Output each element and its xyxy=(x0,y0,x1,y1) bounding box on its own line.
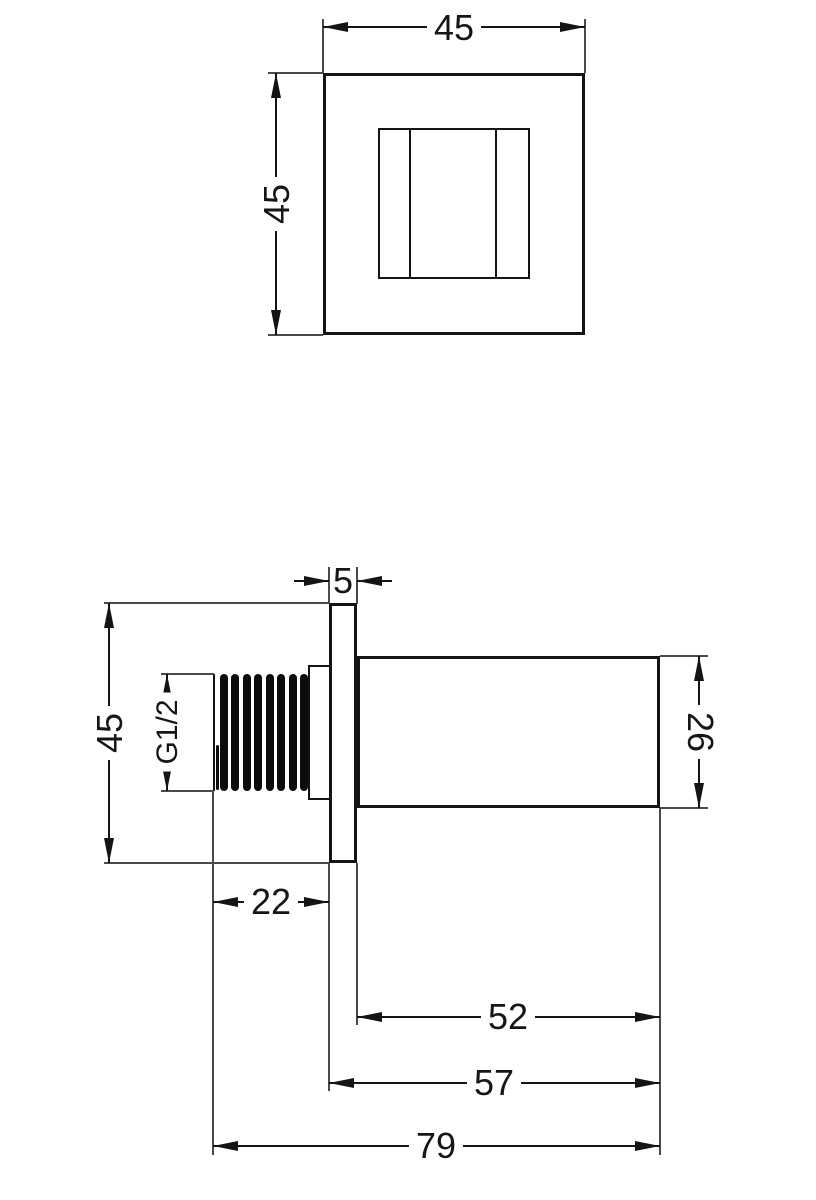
arrowhead-down xyxy=(271,310,281,335)
dim-label-front-height: 45 xyxy=(258,177,296,231)
arrowhead-left xyxy=(213,897,238,907)
arrowhead-up xyxy=(104,603,114,628)
dim-label-body-height: 26 xyxy=(681,705,719,759)
extension-line xyxy=(104,602,329,604)
arrowhead-left xyxy=(329,1078,354,1088)
extension-line xyxy=(104,862,329,864)
arrowhead-right xyxy=(304,576,329,586)
arrowhead-right xyxy=(304,897,329,907)
thread-profile xyxy=(220,674,308,791)
extension-line-plate-back xyxy=(356,863,358,1025)
front-inner-right-edge xyxy=(495,128,497,279)
arrowhead-right xyxy=(635,1012,660,1022)
arrowhead-left xyxy=(213,1141,238,1151)
arrowhead-left xyxy=(323,22,348,32)
front-inner-left-edge xyxy=(409,128,411,279)
dim-label-front-width: 45 xyxy=(427,9,481,47)
dim-label-plate-thickness: 5 xyxy=(330,562,356,600)
arrowhead-down xyxy=(104,838,114,863)
technical-drawing: 45 45 xyxy=(0,0,816,1200)
dim-label-plate-and-body-length: 57 xyxy=(467,1064,521,1102)
extension-line-body-end xyxy=(659,808,661,1155)
dim-label-plate-height: 45 xyxy=(91,706,129,760)
front-inner-square xyxy=(378,128,530,279)
side-wall-plate xyxy=(329,603,357,863)
arrowhead-right xyxy=(635,1078,660,1088)
arrowhead-up xyxy=(271,73,281,98)
side-collar xyxy=(308,665,331,800)
arrowhead-down xyxy=(694,783,704,808)
arrowhead-left xyxy=(357,1012,382,1022)
thread-left-edge xyxy=(213,674,215,791)
arrowhead-up xyxy=(694,656,704,681)
side-body xyxy=(357,656,660,808)
dim-label-body-length: 52 xyxy=(481,998,535,1036)
thread-runout xyxy=(216,745,219,790)
extension-line-thread-start xyxy=(212,791,214,1155)
dim-label-thread-spec: G1/2 xyxy=(152,692,184,771)
arrowhead-right xyxy=(560,22,585,32)
arrowhead-right xyxy=(635,1141,660,1151)
dim-label-thread-length: 22 xyxy=(244,883,298,921)
dim-label-overall-length: 79 xyxy=(409,1127,463,1165)
arrowhead-left xyxy=(357,576,382,586)
extension-line xyxy=(356,567,358,604)
